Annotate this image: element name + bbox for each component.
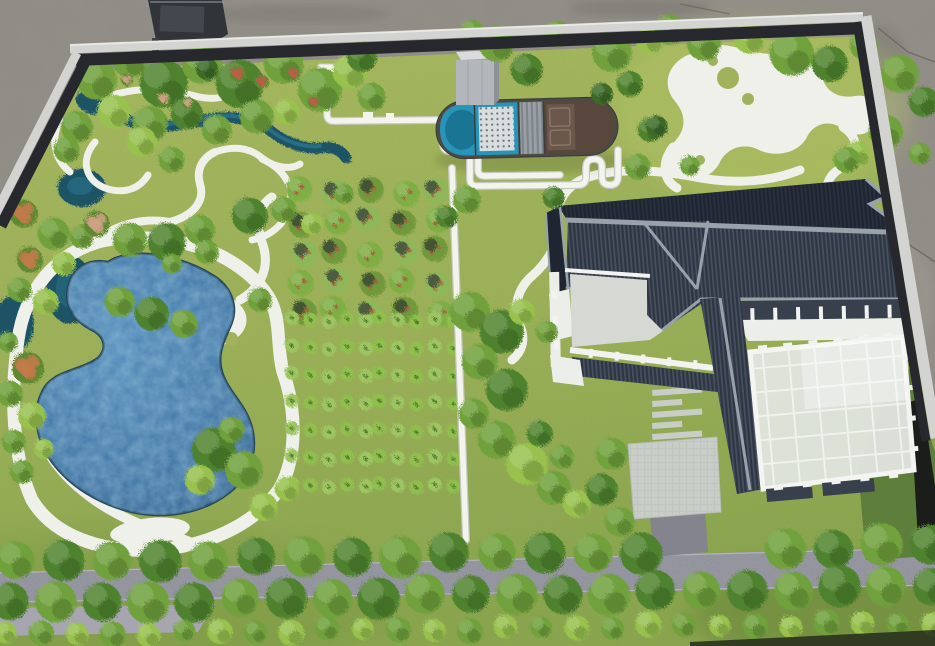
road-tree (331, 536, 370, 575)
crop-plant (371, 419, 385, 433)
road-tree (492, 613, 516, 637)
crop-plant (339, 476, 353, 490)
tree (52, 135, 78, 161)
tree (253, 73, 267, 87)
crop-plant (283, 364, 297, 378)
crop-plant (339, 448, 353, 462)
tree (615, 69, 641, 95)
crop-plant (302, 394, 316, 408)
orchard-plant (388, 208, 414, 234)
crop-plant (371, 337, 385, 351)
tree (644, 114, 666, 136)
road-tree (562, 614, 587, 639)
tree (678, 154, 698, 174)
road-tree (378, 534, 420, 576)
road-tree (450, 574, 488, 612)
wall-post (802, 482, 811, 488)
tree (119, 72, 131, 84)
tree (193, 238, 217, 262)
road-tree (455, 616, 481, 642)
orchard-plant (387, 266, 413, 292)
tree (273, 475, 297, 499)
pipe-fitting (386, 113, 394, 119)
filter-ribs (519, 102, 543, 155)
tree (299, 211, 321, 233)
crop-plant (389, 339, 403, 353)
tree (230, 196, 266, 232)
tree (200, 113, 230, 143)
road-tree (572, 532, 611, 571)
tree (32, 437, 52, 457)
orchard-plant (421, 176, 447, 202)
courtyard-pad-grid (628, 437, 721, 519)
road-tree (81, 581, 120, 620)
crop-plant (283, 419, 297, 433)
crop-plant (445, 478, 459, 492)
crop-plant (445, 450, 459, 464)
crop-plant (357, 450, 371, 464)
tree (95, 93, 129, 127)
road-tree (421, 617, 444, 640)
tree (484, 367, 526, 409)
orchard-plant (286, 268, 312, 294)
road-tree (670, 611, 694, 635)
crop-plant (283, 392, 297, 406)
tree (332, 182, 352, 202)
crop-plant (320, 451, 334, 465)
tree (541, 185, 563, 207)
crop-plant (426, 476, 440, 490)
crop-plant (320, 313, 334, 327)
tree (589, 81, 611, 103)
orchard-plant (392, 179, 418, 205)
crop-plant (357, 478, 371, 492)
tree (183, 213, 213, 243)
tree (594, 436, 626, 468)
road-tree (236, 536, 274, 574)
crop-plant (408, 368, 422, 382)
tree (111, 221, 145, 255)
tree (183, 463, 213, 493)
crop-plant (371, 309, 385, 323)
crop-plant (302, 311, 316, 325)
road-tree (220, 577, 258, 615)
crop-plant (320, 396, 334, 410)
crop-plant (302, 421, 316, 435)
wall-post (819, 306, 823, 319)
tree (228, 64, 244, 80)
road-tree (725, 568, 766, 609)
crop-plant (445, 395, 459, 409)
treatment-basin (435, 97, 618, 160)
road-tree (313, 614, 337, 638)
road-tree (276, 618, 302, 644)
crop-plant (283, 309, 297, 323)
crop-plant (426, 393, 440, 407)
road-tree (356, 576, 398, 618)
tree (31, 287, 57, 313)
crop-plant (408, 479, 422, 493)
orchard-plant (284, 174, 310, 200)
tree (246, 286, 270, 310)
crop-plant (371, 447, 385, 461)
tree (285, 65, 299, 79)
crop-plant (357, 340, 371, 354)
crop-plant (320, 423, 334, 437)
wall-post (859, 335, 868, 341)
crop-plant (357, 422, 371, 436)
road-tree (772, 570, 811, 609)
tree (8, 458, 32, 482)
road-tree (34, 579, 75, 620)
road-tree (886, 611, 908, 633)
tree (15, 245, 41, 271)
crop-plant (302, 366, 316, 380)
crop-plant (445, 422, 459, 436)
wall-post (758, 345, 767, 351)
crop-plant (426, 365, 440, 379)
tree (103, 285, 133, 315)
lake-ripples (37, 254, 254, 515)
wall-post (552, 291, 557, 299)
crop-plant (389, 449, 403, 463)
crop-plant (320, 479, 334, 493)
road-tree (384, 615, 409, 640)
tree (10, 350, 42, 382)
road-tree (812, 528, 851, 567)
greenhouse-sheen (800, 337, 908, 409)
road-tree (476, 532, 514, 570)
crop-plant (408, 341, 422, 355)
tree (50, 250, 74, 274)
tree (584, 472, 616, 504)
wall-post (833, 337, 842, 343)
wall-post (884, 332, 893, 338)
floor-stain (210, 5, 390, 23)
wall-post (842, 306, 846, 319)
wall-post (773, 308, 777, 321)
tree (82, 209, 108, 235)
scale-model-scene (0, 0, 935, 646)
road-tree (27, 619, 52, 644)
tree (146, 221, 184, 259)
crop-plant (357, 367, 371, 381)
tree (248, 491, 276, 519)
road-tree (859, 521, 901, 563)
crop-plant (283, 337, 297, 351)
road-tree (403, 572, 443, 612)
orchard-plant (323, 207, 349, 233)
crop-plant (389, 477, 403, 491)
tree (272, 97, 298, 123)
crop-plant (426, 310, 440, 324)
crop-plant (408, 451, 422, 465)
road-tree (91, 540, 130, 579)
road-tree (206, 617, 231, 642)
road-tree (599, 616, 622, 639)
model-photo (0, 0, 935, 646)
tree (525, 419, 551, 445)
tree (238, 98, 272, 132)
tree (269, 195, 295, 221)
crop-plant (371, 364, 385, 378)
tree (36, 216, 68, 248)
tree (168, 308, 196, 336)
road-tree (633, 568, 673, 608)
road-tree (311, 577, 350, 616)
road-tree (529, 615, 551, 637)
road-tree (618, 531, 660, 573)
road-tree (350, 616, 372, 638)
tree (509, 52, 541, 84)
road-tree (542, 574, 581, 613)
wall-post (554, 341, 559, 349)
tree (534, 319, 556, 341)
orchard-plant (319, 236, 345, 262)
tree (832, 145, 858, 171)
road-tree (586, 572, 628, 614)
crop-plant (371, 392, 385, 406)
road-tree (741, 612, 766, 637)
road-tree (125, 579, 167, 621)
tree (155, 90, 169, 104)
road-tree (427, 531, 467, 571)
road-tree (264, 576, 305, 617)
crop-plant (339, 365, 353, 379)
crop-plant (357, 395, 371, 409)
wall-post (750, 308, 754, 321)
crop-plant (302, 449, 316, 463)
wall-post (774, 485, 783, 491)
tree (180, 95, 192, 107)
pipe-fitting (363, 112, 373, 119)
crop-plant (408, 313, 422, 327)
orchard-plant (356, 175, 382, 201)
crop-plant (426, 448, 440, 462)
tree (434, 204, 456, 226)
crop-plant (426, 338, 440, 352)
road-tree (242, 619, 265, 642)
tree (217, 415, 243, 441)
orchard-plant (420, 234, 446, 260)
road-tree (98, 620, 124, 646)
crop-plant (339, 420, 353, 434)
tree (451, 184, 479, 212)
crop-plant (408, 423, 422, 437)
tree (125, 125, 155, 155)
wall-post (907, 415, 916, 421)
tree (356, 81, 384, 109)
crop-plant (408, 396, 422, 410)
tree (0, 428, 24, 452)
crop-plant (371, 475, 385, 489)
tree (907, 141, 929, 163)
tree (223, 449, 261, 487)
wall-post (889, 473, 898, 479)
wall-post (553, 316, 558, 324)
road-tree (864, 565, 904, 605)
wall-post (783, 342, 792, 348)
crop-plant (339, 310, 353, 324)
road-tree (494, 572, 535, 613)
road-tree (172, 618, 194, 640)
road-tree (812, 607, 838, 633)
road-tree (681, 570, 719, 608)
road-tree (42, 538, 83, 579)
crop-plant (389, 311, 403, 325)
crop-plant (320, 368, 334, 382)
orchard-plant (423, 270, 449, 296)
wall-post (904, 385, 913, 391)
tree (157, 145, 183, 171)
tree (879, 53, 917, 91)
crop-plant (339, 338, 353, 352)
tree (603, 505, 633, 535)
orchard-plant (355, 240, 381, 266)
road-tree (523, 531, 564, 572)
crop-plant (302, 339, 316, 353)
tree (623, 152, 649, 178)
crop-plant (389, 366, 403, 380)
crop-plant (283, 447, 297, 461)
wall-post (887, 305, 891, 318)
crop-plant (339, 393, 353, 407)
wall-post (865, 305, 869, 318)
wall-post (909, 446, 918, 452)
road-tree (186, 540, 226, 580)
tree (306, 94, 318, 106)
road-tree (282, 534, 323, 575)
crop-plant (389, 394, 403, 408)
road-tree (64, 621, 87, 644)
tree (160, 252, 180, 272)
crop-plant (389, 421, 403, 435)
tree (548, 443, 572, 467)
road-tree (817, 563, 859, 605)
road-tree (633, 609, 659, 635)
road-tree (849, 609, 873, 633)
crop-plant (357, 312, 371, 326)
crop-plant (426, 420, 440, 434)
orchard-plant (352, 204, 378, 230)
wall-post (860, 476, 869, 482)
tree (16, 400, 44, 428)
road-tree (137, 538, 179, 580)
road-tree (763, 527, 804, 568)
orchard-plant (391, 237, 417, 263)
orchard-plant (358, 269, 384, 295)
wall-post (808, 340, 817, 346)
tree (133, 295, 167, 329)
road-tree (778, 614, 801, 637)
crop-plant (302, 477, 316, 491)
tree (810, 44, 846, 80)
lake (37, 254, 254, 515)
crop-plant (320, 341, 334, 355)
orchard-plant (322, 265, 348, 291)
aeration-dots (478, 106, 514, 151)
tree (457, 397, 487, 427)
tree (507, 297, 533, 323)
wall-post (831, 479, 840, 485)
tree (6, 276, 30, 300)
road-tree (172, 581, 212, 621)
wall-post (796, 307, 800, 320)
orchard-plant (290, 239, 316, 265)
road-tree (707, 613, 729, 635)
road-tree (135, 622, 159, 646)
